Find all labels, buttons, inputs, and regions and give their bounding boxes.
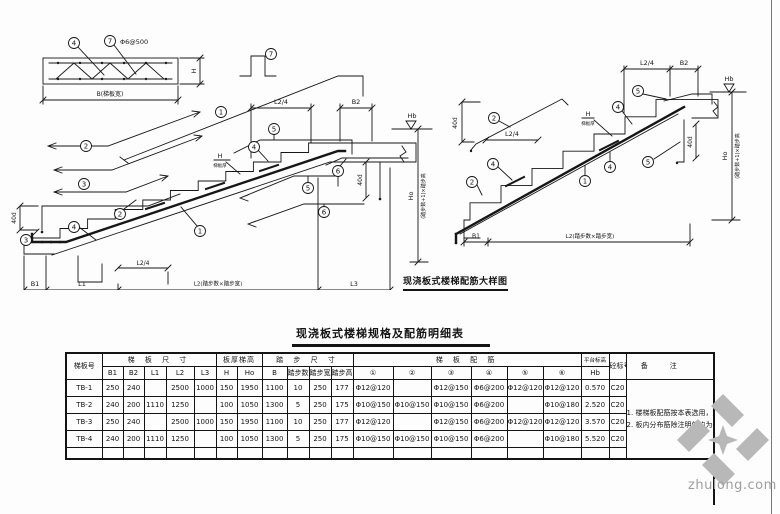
svg-text:3: 3 [24, 237, 28, 245]
svg-text:4: 4 [491, 161, 496, 169]
l1-label: L1 [78, 280, 86, 288]
svg-text:5: 5 [306, 185, 310, 193]
main-bottom-bar-r [456, 107, 684, 242]
slab-h-leader-r [582, 118, 612, 136]
b1-label: B1 [31, 280, 40, 288]
svg-text:5: 5 [646, 159, 650, 167]
svg-text:4: 4 [608, 164, 613, 172]
header-concrete: 砼标号 [609, 353, 626, 379]
header-bar1: ① [353, 366, 393, 379]
beam-longitudinal-bars [49, 63, 172, 79]
header-bar3: ③ [431, 366, 471, 379]
header-group-thickness: 板厚梯高 [216, 353, 262, 366]
stair-detail-left: 4 7 7 1 2 3 3 2 4 1 5 4 6 5 6 B(梯板宽) Φ6@… [8, 28, 440, 290]
header-l3: L3 [194, 366, 216, 379]
header-bar4: ④ [471, 366, 507, 379]
slab-ticks-r [506, 141, 618, 186]
bar3-shape [54, 175, 168, 195]
ho-note-label: (踏步数+1)×踏步高 [420, 173, 427, 218]
svg-text:4: 4 [252, 144, 257, 152]
table-row: TB-4 240200 11101250 100 10501300 5250 1… [66, 430, 714, 447]
slab-h-label: H [218, 152, 223, 160]
svg-text:4: 4 [72, 40, 77, 48]
header-bar6: ⑥ [543, 366, 581, 379]
svg-text:5: 5 [636, 88, 640, 96]
svg-text:4: 4 [72, 224, 77, 232]
svg-text:2: 2 [492, 115, 496, 123]
zhulong-logo [663, 392, 780, 488]
spec-table-wrap: 梯板号 梯 板 尺 寸 板厚梯高 踏 步 尺 寸 梯 板 配 筋 平台标高 砼标… [65, 352, 715, 460]
table-row: TB-2 240200 11101250 100 10501300 5250 1… [66, 396, 714, 413]
l2q-bottom-label: L2/4 [137, 260, 150, 267]
l2q-top-label-r: L2/4 [640, 59, 654, 67]
header-l1: L1 [144, 366, 166, 379]
l3-label: L3 [350, 280, 358, 288]
hb-label-r: Hb [724, 75, 733, 83]
header-group-slab-dims: 梯 板 尺 寸 [102, 353, 216, 366]
header-hb: Hb [581, 366, 609, 379]
header-group-platform: 平台标高 [581, 353, 609, 366]
slab-h-note: 梯板厚 [213, 162, 227, 169]
table-row: TB-3 250240 2500 1000150 19501100 10250 … [66, 413, 714, 430]
bar1-shape [120, 76, 363, 163]
hb-label: Hb [407, 112, 416, 120]
logo-pinwheel [677, 394, 769, 486]
bar2b-shape [54, 135, 202, 173]
dim-40d-upleft [459, 99, 480, 145]
ho-label: Ho [407, 192, 415, 201]
bar-40d-hang-r [677, 120, 684, 162]
b2-label-r: B2 [680, 59, 689, 67]
header-slab-id: 梯板号 [66, 353, 102, 379]
header-bar5: ⑤ [507, 366, 543, 379]
svg-text:2: 2 [470, 179, 474, 187]
svg-text:3: 3 [82, 181, 86, 189]
b2-top-label: B2 [352, 98, 361, 106]
header-bar2: ② [393, 366, 431, 379]
watermark-site-text: zhulong.com [688, 478, 777, 493]
bar6-shape [248, 204, 364, 227]
header-step-count: 踏步数 [287, 366, 309, 379]
header-step-height: 踏步高 [331, 366, 353, 379]
b1-label-r: B1 [472, 233, 480, 240]
header-notes: 备注 [626, 353, 714, 379]
slab-distribution-ticks [146, 165, 278, 209]
header-b1: B1 [102, 366, 123, 379]
d40-left-label: 40d [11, 212, 18, 224]
table-row-empty [66, 447, 714, 459]
svg-text:1: 1 [219, 109, 223, 117]
svg-text:1: 1 [198, 228, 202, 236]
dim-l2q-bottom [115, 265, 171, 284]
svg-text:2: 2 [118, 211, 122, 219]
beam-stirrup-zigzag [56, 63, 164, 79]
break-line-r [713, 102, 718, 116]
leaders-r [477, 94, 680, 195]
header-ho: Ho [237, 366, 262, 379]
dim-b2-top [337, 104, 375, 141]
level-mark-hb-r [710, 84, 746, 92]
ho-note-label-r: (踏步数+1)×踏步高 [734, 133, 741, 178]
d40-upleft-label: 40d [452, 117, 459, 129]
slab-h-label-r: H [586, 110, 591, 118]
slab-h-note-r: 梯板厚 [581, 120, 595, 127]
header-group-steps: 踏 步 尺 寸 [262, 353, 353, 366]
d40-lowright-label: 40d [687, 136, 694, 148]
svg-text:4: 4 [616, 104, 621, 112]
header-l2: L2 [166, 366, 194, 379]
beam-h-label: H [190, 68, 198, 73]
stair-detail-right: 2 2 4 4 4 1 5 5 40d 40d L2/4 L2/4 B2 Hb … [440, 38, 776, 270]
detail-drawing-title: 现浇板式楼梯配筋大样图 [403, 274, 508, 291]
l2-full-label: L2(踏步数×踏步宽) [194, 280, 242, 288]
svg-text:6: 6 [322, 209, 327, 217]
svg-text:1: 1 [583, 178, 587, 186]
logo-center-star [708, 425, 738, 455]
svg-text:5: 5 [272, 126, 276, 134]
l2q-top-label: L2/4 [274, 98, 288, 106]
beam-section-outline [43, 58, 178, 84]
svg-text:6: 6 [336, 168, 341, 176]
leaders-platform [258, 134, 346, 166]
beam-width-label: B(梯板宽) [97, 90, 124, 98]
table-title: 现浇板式楼梯规格及配筋明细表 [292, 325, 490, 347]
header-h: H [216, 366, 237, 379]
callout-circles-right [467, 86, 654, 188]
svg-text:7: 7 [108, 38, 112, 46]
table-row: TB-1 250240 2500 1000150 19501100 10250 … [66, 379, 714, 396]
d40-right-label: 40d [357, 174, 364, 186]
svg-text:2: 2 [84, 143, 88, 151]
l2q-left-label: L2/4 [505, 130, 519, 138]
drawing-sheet: { "titles": { "left_detail": "现浇板式楼梯配筋大样… [0, 0, 780, 514]
level-mark-hb [392, 121, 432, 129]
callout-numbers-left: 4 7 7 1 2 3 3 2 4 1 5 4 6 5 6 [24, 38, 341, 245]
dim-40d-left [17, 203, 38, 233]
spec-table: 梯板号 梯 板 尺 寸 板厚梯高 踏 步 尺 寸 梯 板 配 筋 平台标高 砼标… [65, 352, 715, 460]
header-b: B [262, 366, 287, 379]
callout-numbers-right: 2 2 4 4 4 1 5 5 [470, 88, 650, 187]
bar7-spec-label: Φ6@500 [120, 38, 148, 46]
ho-label-r: Ho [721, 152, 729, 161]
bar2-shape [48, 111, 200, 149]
callout-4-leader [78, 47, 104, 75]
header-group-rebar: 梯 板 配 筋 [353, 353, 581, 366]
break-line [400, 146, 406, 162]
svg-text:7: 7 [269, 51, 273, 59]
bar5-inplace-r [664, 94, 712, 104]
header-step-width: 踏步宽 [309, 366, 331, 379]
l2-full-label-r: L2(踏步数×踏步宽) [566, 232, 614, 240]
bar2-shape-r [471, 99, 568, 150]
header-b2: B2 [123, 366, 144, 379]
